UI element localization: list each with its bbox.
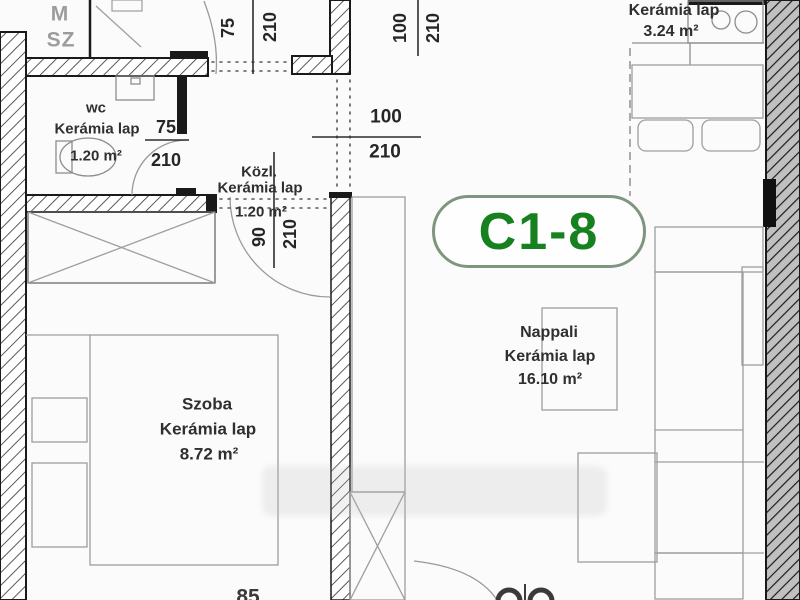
neighbor-unit-lines — [90, 0, 142, 58]
neighbor-label-sz: SZ — [47, 30, 76, 51]
door-arc-bottom-entry — [414, 561, 497, 600]
room-label-szoba-name: Szoba — [182, 396, 232, 413]
room-label-kozl-name: Közl. — [241, 165, 277, 180]
dim-wc-door-width: 75 — [156, 118, 176, 136]
clipped-bottom-dimension: 85 — [236, 587, 259, 600]
desk — [32, 463, 87, 547]
wall-center — [331, 194, 350, 600]
floor-plan: M SZ wc Kerámia lap 1.20 m² 75 210 Közl.… — [0, 0, 800, 600]
wall-left — [0, 32, 26, 600]
room-label-nappali-material: Kerámia lap — [505, 349, 596, 365]
hall-cabinet-strip — [352, 197, 405, 492]
dim-kozl-pass-width: 100 — [370, 108, 402, 127]
room-label-kozl-area: 1.20 m² — [235, 205, 287, 220]
wall-wc-top — [26, 58, 208, 76]
sofa — [578, 272, 764, 599]
wall-top-l-foot — [292, 56, 332, 74]
room-label-wc-name: wc — [86, 101, 106, 116]
room-label-wc-area: 1.20 m² — [70, 149, 122, 164]
unit-badge: C1-8 — [432, 195, 646, 268]
side-shelf — [742, 267, 763, 365]
sink-bowl-icon — [735, 11, 757, 33]
wall-right — [766, 0, 800, 600]
room-label-nappali-name: Nappali — [520, 325, 578, 341]
dim-kozl-pass-height: 210 — [369, 143, 401, 162]
kitchen-chair-right — [702, 120, 760, 151]
washbasin-tap-icon — [131, 78, 140, 84]
dim-wc-door-height: 210 — [151, 151, 181, 169]
room-label-kozl-material: Kerámia lap — [217, 181, 302, 196]
room-label-szoba-material: Kerámia lap — [160, 421, 256, 438]
wall-right-block — [763, 179, 776, 227]
watermark — [262, 466, 607, 516]
wall-szoba-top-notch — [176, 188, 196, 196]
room-label-wc-material: Kerámia lap — [54, 122, 139, 137]
neighbor-fixture — [112, 0, 142, 11]
wall-szoba-top-endcap — [206, 195, 216, 212]
wall-szoba-top — [26, 195, 216, 212]
nightstand — [32, 398, 87, 442]
wall-wc-top-step — [170, 51, 208, 59]
bottom-clipped-door-glyphs — [498, 584, 552, 600]
dim-szoba-door-width: 90 — [250, 227, 268, 247]
room-label-szoba-area: 8.72 m² — [180, 446, 239, 463]
kitchen-chair-left — [638, 120, 693, 151]
dim-top-center-height: 210 — [424, 13, 442, 43]
room-label-konyha-material: Kerámia lap — [629, 3, 720, 19]
wall-center-cap — [329, 192, 352, 198]
neighbor-label-m: M — [51, 4, 70, 25]
dim-entry-top-height: 210 — [261, 12, 279, 42]
washbasin-icon — [116, 76, 154, 100]
dim-top-center-width: 100 — [391, 13, 409, 43]
room-label-nappali-area: 16.10 m² — [518, 372, 582, 388]
dim-entry-top-width: 75 — [219, 18, 237, 38]
neighbor-door-leaf — [96, 6, 141, 47]
wall-wc-right-stub — [177, 76, 187, 134]
wardrobe — [28, 212, 215, 283]
room-label-konyha-area: 3.24 m² — [643, 24, 698, 40]
kitchen-table — [632, 65, 763, 118]
sofa-ottoman — [655, 553, 743, 599]
tv-cabinet — [655, 227, 763, 272]
dim-szoba-door-height: 210 — [281, 219, 299, 249]
